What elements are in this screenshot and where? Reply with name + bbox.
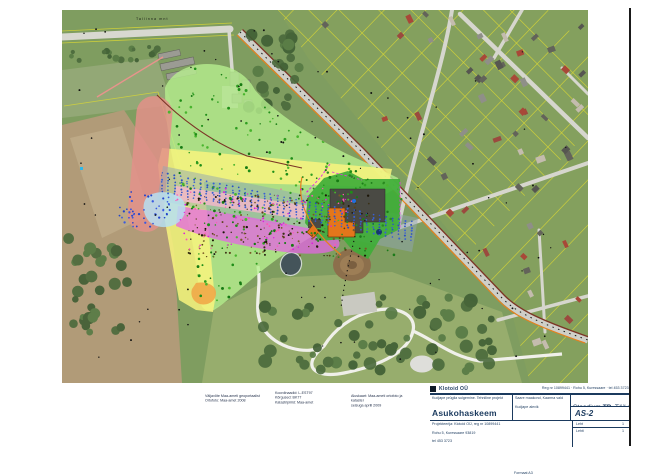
frame-border-line bbox=[629, 8, 631, 446]
cyan-marker bbox=[80, 167, 83, 170]
title-block-header: Klotoid OÜ Reg nr 10899441 · Rohu 5, Kur… bbox=[430, 384, 629, 395]
sheet-label: Leht bbox=[576, 422, 583, 424]
company-name: Klotoid OÜ bbox=[439, 386, 468, 392]
designer-line: Rohu 5, Kuressaare 93819 bbox=[432, 431, 508, 436]
designer-line: Projekteerija: Klotoid OÜ, reg nr 108994… bbox=[432, 422, 508, 427]
location-cell: Saare maakond, Kaarma vald Kudjape alevi… bbox=[512, 395, 570, 420]
designer-line: tel 453 3723 bbox=[432, 439, 508, 444]
sheet-value: 1 bbox=[622, 422, 624, 424]
zone-orange-patch bbox=[191, 283, 216, 305]
note-block-1: Väljavõte Maa-ameti geoportaalistOrtofot… bbox=[205, 394, 261, 412]
drawing-page: Tallinna mnt Väljavõte Maa-ameti geoport… bbox=[0, 0, 650, 459]
location-line: Saare maakond, Kaarma vald bbox=[515, 396, 544, 401]
note-block-2: Koordinaadid: L-EST97Kõrgused: BK77Katas… bbox=[275, 391, 319, 418]
company-logo-icon bbox=[430, 386, 436, 392]
company-contact: Reg nr 10899441 · Rohu 5, Kuressaare · t… bbox=[542, 386, 629, 390]
note-block-3: Aluskaart: Maa-ameti ortofoto ja kataste… bbox=[351, 394, 415, 421]
drawing-title: Asukohaskeem bbox=[432, 408, 510, 418]
blue-marker bbox=[352, 199, 356, 203]
sheets-label: Lehti bbox=[576, 429, 584, 432]
sheets-value: 1 bbox=[622, 429, 624, 432]
format-note: Formaat A3 bbox=[514, 471, 533, 476]
project-name: Kudjape prügila sulgemine. Tehniline pro… bbox=[432, 396, 475, 401]
sheet-cell: Staadium TP Töö nr 09-21 AS-2 bbox=[570, 395, 629, 420]
sheet-count-cell: Leht1 Lehti1 bbox=[572, 421, 629, 447]
map-svg bbox=[62, 10, 588, 383]
designer-cell: Projekteerija: Klotoid OÜ, reg nr 108994… bbox=[430, 421, 572, 447]
sheet-code: AS-2 bbox=[571, 407, 629, 418]
street-name-label: Tallinna mnt bbox=[136, 17, 169, 22]
location-line: Kudjape alevik bbox=[515, 405, 544, 410]
project-cell: Kudjape prügila sulgemine. Tehniline pro… bbox=[430, 395, 512, 420]
aerial-map bbox=[62, 10, 588, 383]
title-block: Klotoid OÜ Reg nr 10899441 · Rohu 5, Kur… bbox=[430, 384, 629, 446]
